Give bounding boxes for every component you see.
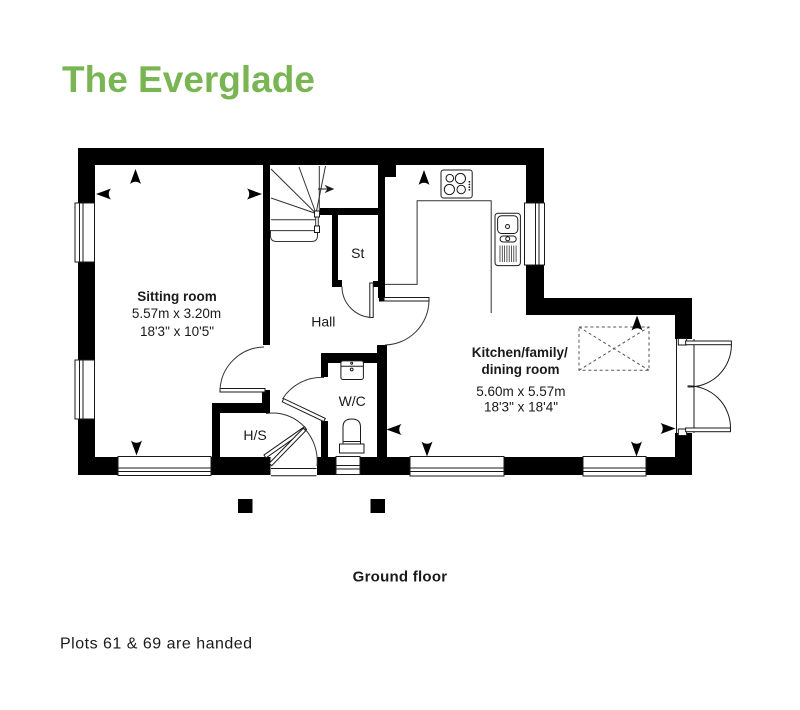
svg-text:Sitting room: Sitting room — [137, 289, 217, 304]
svg-text:dining room: dining room — [482, 362, 560, 377]
svg-text:18'3" x 10'5": 18'3" x 10'5" — [140, 324, 214, 339]
svg-text:H/S: H/S — [243, 427, 266, 443]
svg-text:Plots 61 & 69 are handed: Plots 61 & 69 are handed — [60, 636, 253, 653]
svg-text:W/C: W/C — [339, 393, 366, 409]
svg-text:18'3" x 18'4": 18'3" x 18'4" — [484, 400, 558, 415]
svg-text:Kitchen/family/: Kitchen/family/ — [472, 345, 568, 360]
svg-text:Hall: Hall — [311, 314, 335, 330]
svg-text:St: St — [351, 245, 364, 261]
svg-text:Ground floor: Ground floor — [353, 569, 448, 586]
svg-text:5.60m x 5.57m: 5.60m x 5.57m — [476, 384, 565, 399]
svg-text:The Everglade: The Everglade — [62, 59, 315, 100]
svg-text:5.57m x 3.20m: 5.57m x 3.20m — [132, 306, 221, 321]
